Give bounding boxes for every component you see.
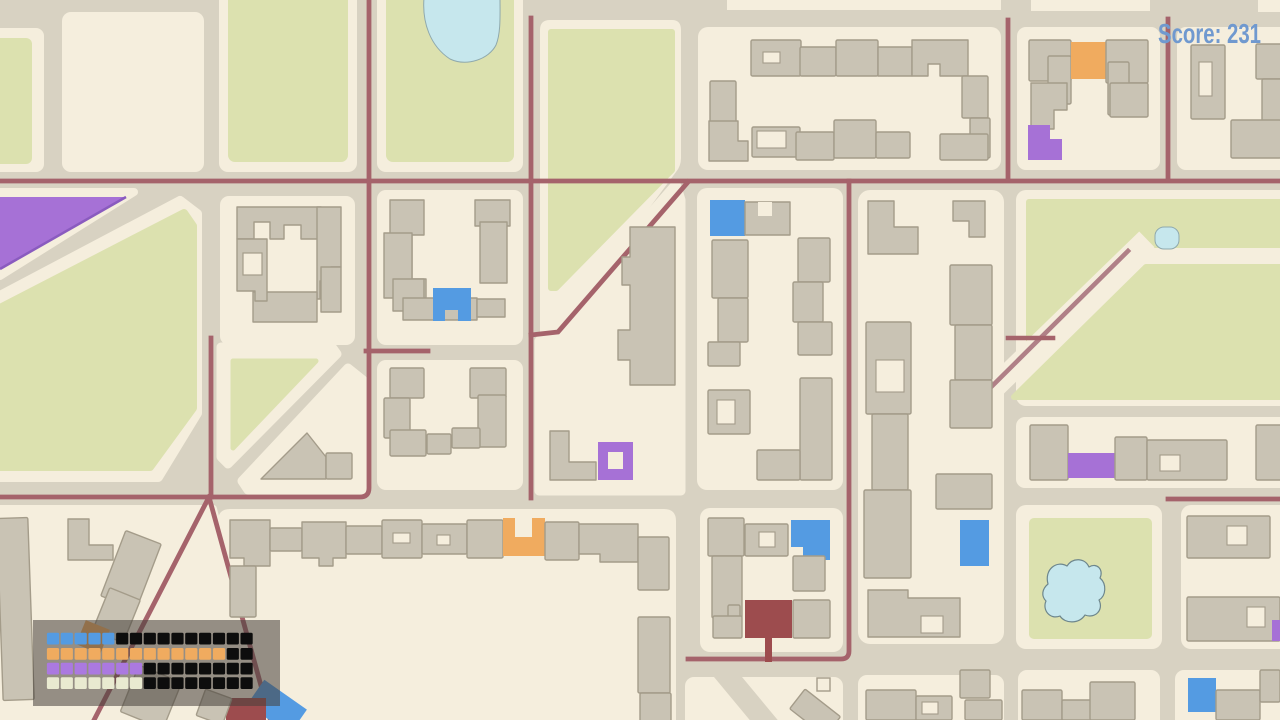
svg-text:Score: 231: Score: 231 [1158, 18, 1261, 49]
